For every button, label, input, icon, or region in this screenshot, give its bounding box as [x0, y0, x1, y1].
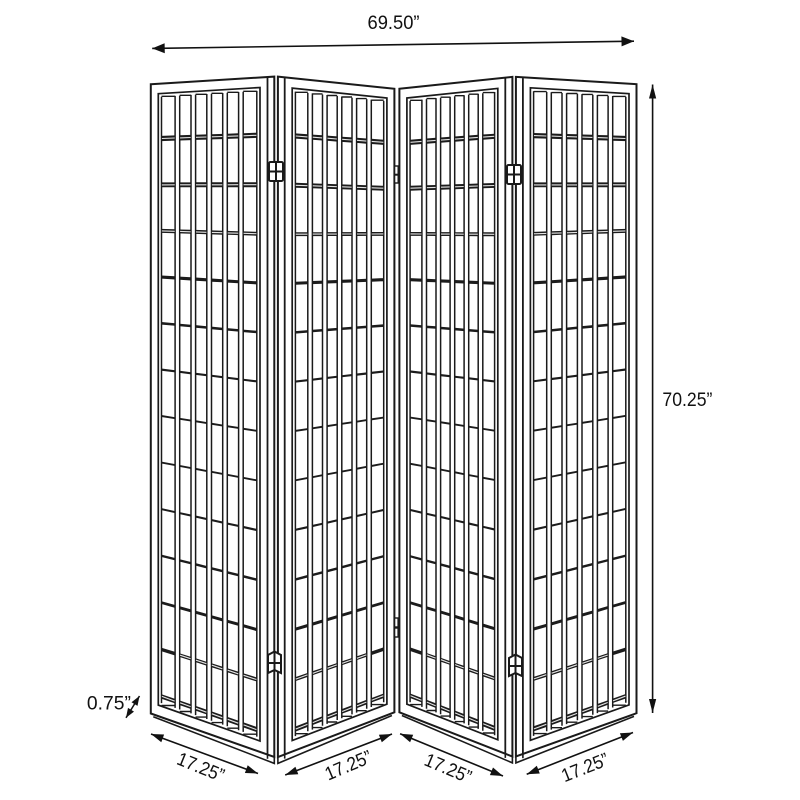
svg-text:0.75”: 0.75”: [87, 694, 131, 715]
svg-text:70.25”: 70.25”: [662, 390, 712, 411]
svg-text:69.50”: 69.50”: [368, 13, 420, 34]
